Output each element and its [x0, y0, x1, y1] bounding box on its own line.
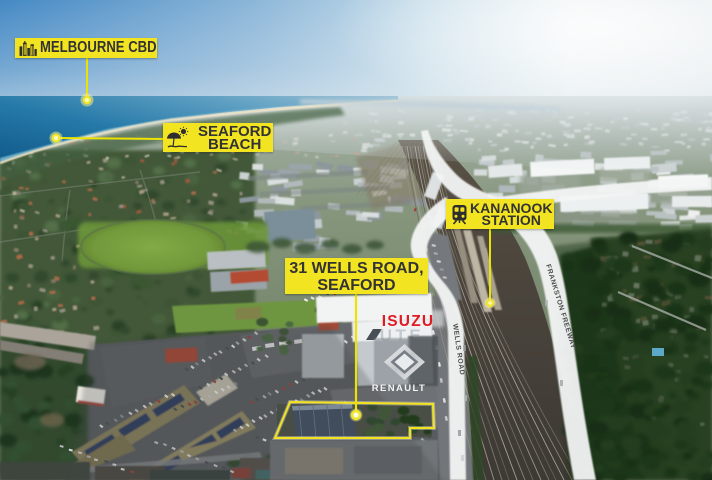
svg-text:RENAULT: RENAULT	[372, 383, 426, 394]
